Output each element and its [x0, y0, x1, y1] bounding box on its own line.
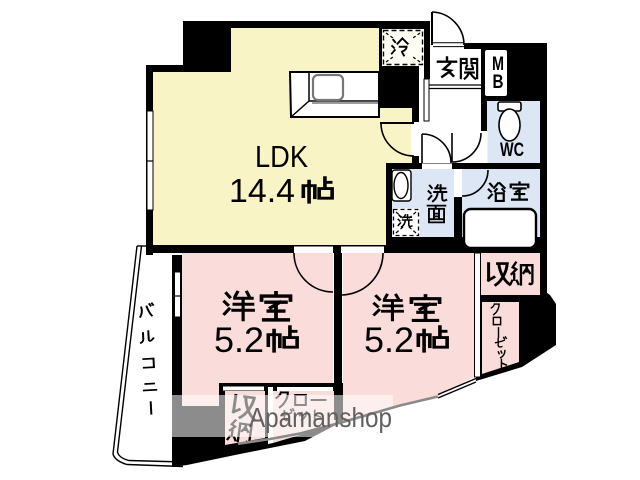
svg-text:Apamanshop: Apamanshop [249, 402, 392, 433]
svg-text:WC: WC [500, 140, 524, 161]
svg-text:14.4: 14.4 [229, 172, 295, 209]
svg-text:5.2: 5.2 [364, 321, 414, 360]
svg-text:5.2: 5.2 [214, 321, 264, 360]
svg-text:B: B [493, 72, 504, 93]
svg-text:LDK: LDK [255, 139, 308, 174]
